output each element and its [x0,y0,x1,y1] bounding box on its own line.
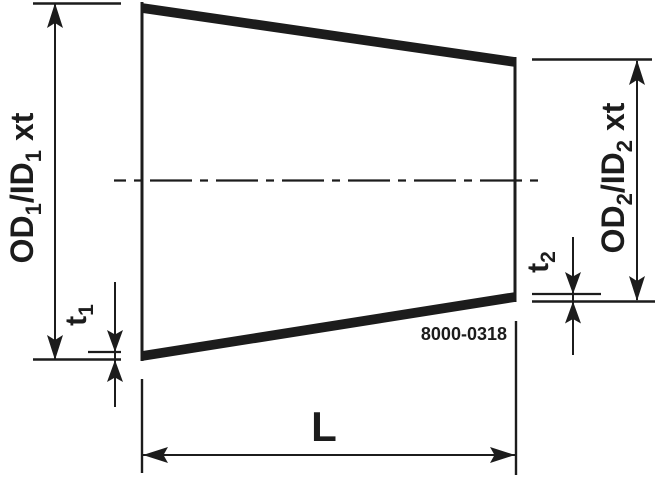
t1-dimension: t1 [60,282,123,407]
part-number: 8000-0318 [421,324,507,344]
od2-label-main1: OD [595,205,631,253]
od1-label-main1: OD [4,215,40,263]
od1-label: OD1/ID1xt [4,112,46,263]
od2-label-suffix: xt [595,102,631,131]
t1-label: t1 [60,304,98,326]
od1-label-suffix: xt [4,112,40,141]
t2-label-sub: 2 [537,251,560,263]
reducer-body [142,2,515,361]
t1-label-main: t [60,316,93,326]
od1-label-main2: /ID [4,162,40,203]
t1-label-sub: 1 [75,304,98,316]
od1-label-sub1: 1 [21,203,46,215]
od1-label-sub2: 1 [21,150,46,162]
top-wall-hatched [142,4,515,66]
length-label: L [311,403,337,450]
od2-label: OD2/ID2xt [595,102,637,253]
drawing-canvas: OD1/ID1xt t1 L OD2/ID2xt t2 8000-0318 [0,0,659,477]
t2-label: t2 [522,251,560,273]
t2-dimension: t2 [522,237,601,355]
od2-label-main2: /ID [595,152,631,193]
t2-label-main: t [522,263,555,273]
od2-label-sub1: 2 [612,193,637,205]
reducer-technical-drawing: OD1/ID1xt t1 L OD2/ID2xt t2 8000-0318 [0,0,659,477]
od2-label-sub2: 2 [612,140,637,152]
od1-dimension: OD1/ID1xt [4,3,121,360]
